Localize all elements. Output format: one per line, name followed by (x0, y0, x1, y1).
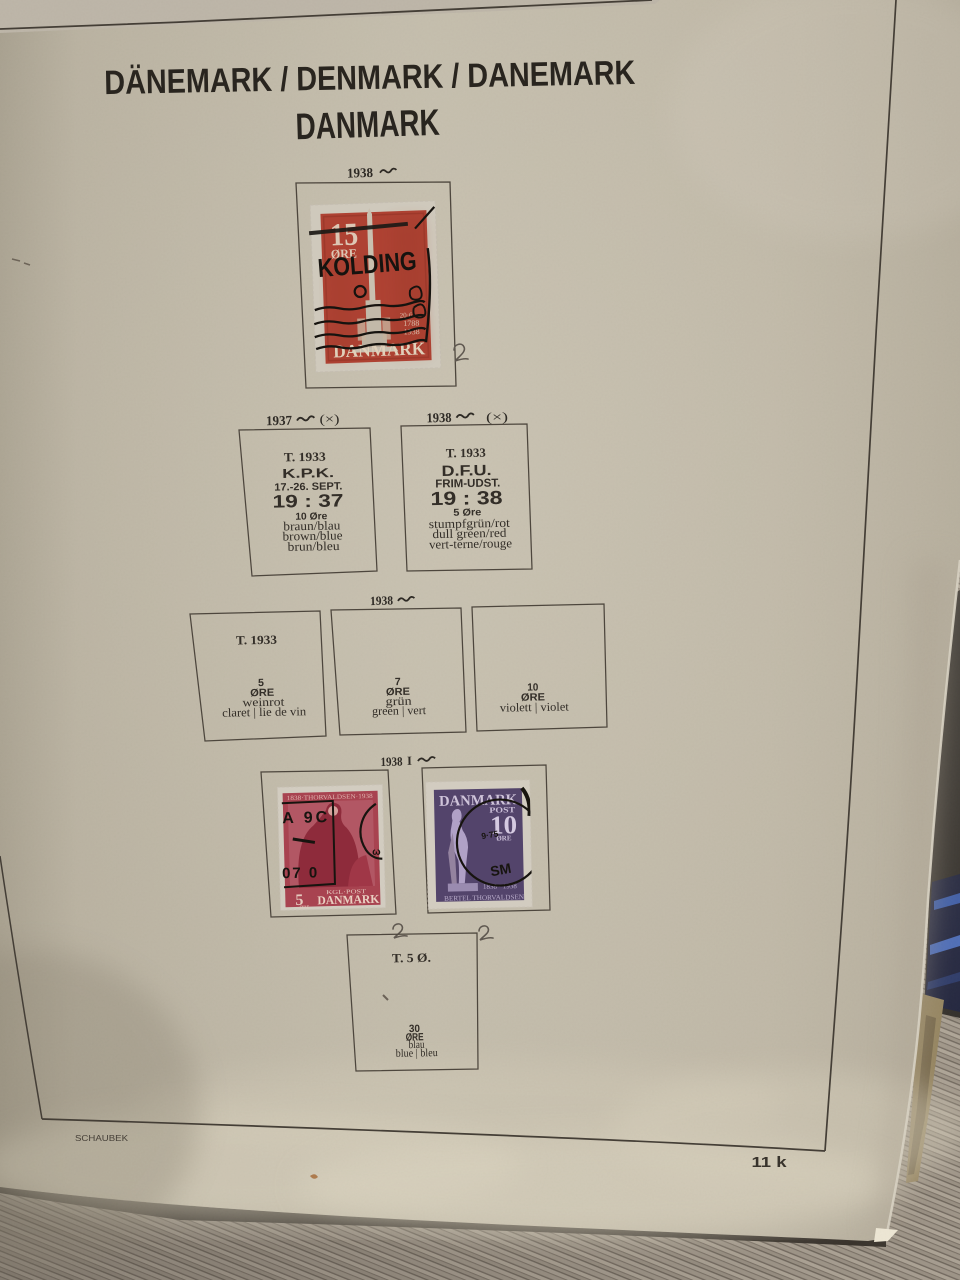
svg-text:ω: ω (372, 847, 381, 858)
svg-text:BERTEL THORVALDSEN: BERTEL THORVALDSEN (444, 893, 524, 903)
svg-text:1938: 1938 (370, 594, 393, 609)
svg-text:19 : 37: 19 : 37 (272, 490, 343, 511)
svg-text:07 0: 07 0 (282, 864, 320, 882)
svg-text:claret | lie de vin: claret | lie de vin (222, 704, 306, 719)
svg-text:ØRE: ØRE (496, 834, 512, 842)
svg-text:T. 5 Ø.: T. 5 Ø. (392, 951, 431, 966)
svg-text:1938: 1938 (426, 410, 452, 426)
svg-text:DANMARK: DANMARK (295, 102, 440, 148)
svg-text:K.P.K.: K.P.K. (282, 465, 334, 481)
svg-text:T. 1933: T. 1933 (446, 446, 486, 461)
svg-text:vert-terne/rouge: vert-terne/rouge (429, 536, 513, 551)
svg-text:green | vert: green | vert (372, 703, 427, 718)
svg-text:ØRE: ØRE (300, 906, 310, 911)
svg-text:(×): (×) (486, 409, 508, 424)
svg-text:DANMARK: DANMARK (317, 892, 380, 908)
svg-text:1938: 1938 (380, 754, 402, 768)
svg-text:violett | violet: violett | violet (500, 699, 570, 714)
svg-text:A 9C: A 9C (282, 809, 330, 827)
svg-text:T. 1933: T. 1933 (284, 450, 326, 465)
svg-text:I: I (407, 754, 412, 768)
svg-text:11 k: 11 k (752, 1154, 788, 1171)
svg-text:(×): (×) (319, 411, 339, 426)
svg-text:SCHAUBEK: SCHAUBEK (75, 1134, 129, 1143)
svg-text:1937: 1937 (266, 413, 293, 429)
svg-text:1938: 1938 (347, 165, 374, 181)
svg-text:blue | bleu: blue | bleu (396, 1047, 439, 1060)
svg-text:T. 1933: T. 1933 (236, 633, 277, 648)
svg-text:brun/bleu: brun/bleu (287, 539, 340, 554)
